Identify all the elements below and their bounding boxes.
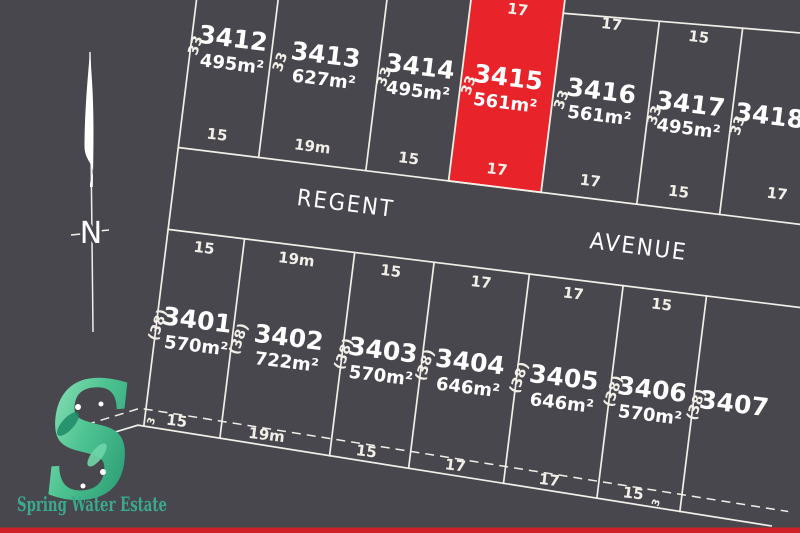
- logo-wordmark: Spring Water Estate: [17, 492, 167, 516]
- lot-3406-frontage: 15: [650, 294, 673, 314]
- lot-3415-rear-dim: 17: [506, 0, 529, 20]
- logo-dot: [75, 404, 81, 410]
- lot-3403-rear-dim: 15: [355, 441, 378, 461]
- lot-3404-rear-dim: 17: [444, 455, 467, 475]
- lot-3416-rear-dim: 17: [600, 14, 623, 34]
- lot-3401-rear-dim: 15: [165, 411, 188, 431]
- lot-3412-frontage: 15: [206, 124, 229, 144]
- lot-3417-frontage: 15: [667, 182, 690, 202]
- bottom-accent-bar: [0, 528, 800, 533]
- compass-north-label: N: [80, 216, 102, 251]
- lot-3405-rear-dim: 17: [538, 470, 561, 490]
- logo-dot: [100, 469, 106, 475]
- lot-3415-frontage: 17: [486, 159, 509, 179]
- estate-map: REGENT AVENUE 3412 495m² 3413 627m² 3414…: [0, 0, 800, 533]
- lot-3403-frontage: 15: [379, 261, 402, 281]
- estate-map-page: REGENT AVENUE 3412 495m² 3413 627m² 3414…: [0, 0, 800, 533]
- lot-3416-frontage: 17: [579, 171, 602, 191]
- lot-3404-frontage: 17: [470, 272, 493, 292]
- logo-dot: [99, 402, 104, 407]
- lot-3414-frontage: 15: [397, 148, 420, 168]
- lot-3401-frontage: 15: [193, 238, 216, 258]
- lot-3418-frontage: 17: [766, 184, 789, 204]
- lot-3406-rear-dim: 15: [622, 483, 645, 503]
- lot-3417-rear-dim: 15: [687, 27, 710, 47]
- logo-dot: [81, 484, 86, 489]
- lot-3405-frontage: 17: [562, 283, 585, 303]
